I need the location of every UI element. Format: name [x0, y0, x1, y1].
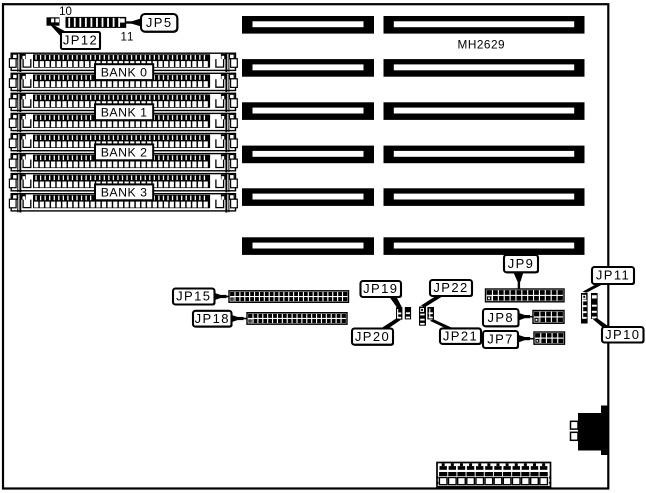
svg-text:JP12: JP12 [63, 33, 98, 48]
svg-text:JP5: JP5 [146, 15, 173, 30]
svg-text:11: 11 [121, 31, 135, 43]
svg-text:JP18: JP18 [195, 311, 230, 326]
svg-text:BANK 1: BANK 1 [101, 106, 148, 120]
svg-text:JP22: JP22 [433, 280, 468, 295]
svg-text:MH2629: MH2629 [458, 38, 506, 52]
svg-text:BANK 3: BANK 3 [101, 186, 148, 200]
svg-text:BANK 0: BANK 0 [101, 65, 148, 79]
svg-text:JP11: JP11 [596, 268, 630, 283]
svg-text:JP10: JP10 [605, 327, 640, 342]
svg-text:BANK 2: BANK 2 [101, 146, 148, 160]
svg-text:JP9: JP9 [508, 256, 535, 271]
svg-text:JP15: JP15 [176, 289, 211, 304]
svg-text:JP7: JP7 [487, 332, 514, 347]
svg-text:10: 10 [59, 6, 72, 18]
svg-text:JP21: JP21 [443, 328, 478, 343]
svg-text:JP19: JP19 [363, 281, 398, 296]
svg-text:JP20: JP20 [355, 329, 390, 344]
svg-text:JP8: JP8 [487, 310, 514, 325]
